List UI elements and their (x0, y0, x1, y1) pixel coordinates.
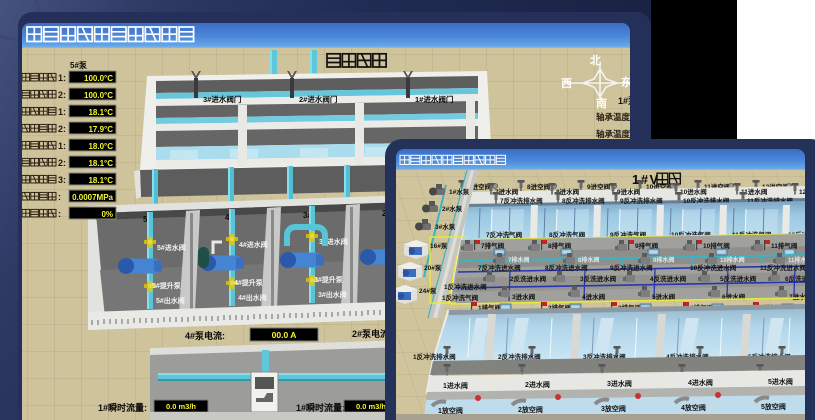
svg-text:3:: 3: (58, 175, 66, 185)
svg-text:5#进水阀: 5#进水阀 (157, 243, 186, 252)
svg-text:9排水阀: 9排水阀 (653, 256, 674, 264)
svg-text:2#进水阀门: 2#进水阀门 (299, 94, 337, 104)
svg-text:1#泵: 1#泵 (618, 96, 630, 106)
svg-text:轴承温度1: 轴承温度1 (596, 112, 630, 122)
svg-text:10反冲洗进水阀: 10反冲洗进水阀 (690, 263, 737, 272)
svg-text:1反冲洗气阀: 1反冲洗气阀 (442, 293, 479, 302)
svg-text:2放空阀: 2放空阀 (518, 405, 543, 414)
svg-text:1#进水阀门: 1#进水阀门 (415, 94, 453, 104)
svg-text:2进水阀: 2进水阀 (525, 380, 550, 389)
svg-text:18.1°C: 18.1°C (88, 176, 113, 185)
svg-text:10排水阀: 10排水阀 (720, 256, 745, 264)
svg-text:3进水阀: 3进水阀 (512, 292, 536, 301)
svg-text:100.0°C: 100.0°C (84, 74, 113, 83)
svg-text:0.0 m3/h: 0.0 m3/h (166, 402, 196, 411)
svg-text:北: 北 (590, 53, 601, 67)
svg-text:2#水泵: 2#水泵 (442, 204, 463, 213)
svg-text:1进水阀: 1进水阀 (443, 381, 468, 390)
svg-text:1#水泵: 1#水泵 (449, 187, 470, 196)
svg-text::: : (58, 209, 61, 219)
svg-text:5#提升泵: 5#提升泵 (152, 281, 181, 290)
svg-text:16#泵: 16#泵 (430, 241, 448, 250)
svg-text:东: 东 (621, 75, 630, 89)
svg-text:5放空阀: 5放空阀 (761, 402, 786, 411)
svg-text:1:: 1: (58, 73, 66, 83)
svg-text:7排水阀: 7排水阀 (508, 256, 529, 264)
svg-text:南: 南 (596, 96, 607, 110)
svg-text:3#出水阀: 3#出水阀 (318, 290, 347, 299)
svg-text:17.9°C: 17.9°C (88, 125, 113, 134)
svg-text:20#泵: 20#泵 (424, 263, 442, 272)
svg-text:24#泵: 24#泵 (419, 286, 437, 295)
svg-text:5反洗进水阀: 5反洗进水阀 (720, 274, 757, 283)
svg-text:4#泵电流:: 4#泵电流: (185, 330, 225, 341)
svg-text:2:: 2: (58, 90, 66, 100)
svg-text:3反洗进水阀: 3反洗进水阀 (580, 274, 617, 283)
svg-text:4进水阀: 4进水阀 (688, 378, 713, 387)
svg-text:3#提升泵: 3#提升泵 (314, 275, 343, 284)
svg-text:1放空阀: 1放空阀 (438, 406, 463, 415)
svg-text:7进水阀: 7进水阀 (495, 187, 519, 196)
svg-text:1#瞬时流量:: 1#瞬时流量: (98, 402, 147, 413)
svg-text:8反冲洗排水阀: 8反冲洗排水阀 (562, 196, 605, 205)
svg-text:8进空阀: 8进空阀 (527, 182, 551, 191)
svg-text:5#泵: 5#泵 (70, 61, 87, 70)
svg-text:2反洗进水阀: 2反洗进水阀 (510, 274, 547, 283)
svg-text:4#出水阀: 4#出水阀 (238, 293, 267, 302)
svg-text:4反洗进水阀: 4反洗进水阀 (650, 274, 687, 283)
svg-text:8排水阀: 8排水阀 (578, 256, 599, 264)
svg-text:4#提升泵: 4#提升泵 (234, 278, 263, 287)
svg-text:2:: 2: (58, 158, 66, 168)
svg-text:8反冲洗进水阀: 8反冲洗进水阀 (545, 263, 588, 272)
svg-text:10进水阀: 10进水阀 (680, 187, 707, 196)
svg-text:1:: 1: (58, 107, 66, 117)
svg-text:4#进水阀: 4#进水阀 (239, 240, 268, 249)
svg-text:3放空阀: 3放空阀 (601, 404, 626, 413)
svg-text:5进水阀: 5进水阀 (768, 377, 793, 386)
svg-text:7反冲洗排水阀: 7反冲洗排水阀 (500, 196, 543, 205)
svg-text:11排水阀: 11排水阀 (788, 256, 805, 264)
svg-text::: : (58, 192, 61, 202)
svg-text:18.0°C: 18.0°C (88, 142, 113, 151)
svg-text:1反冲洗排水阀: 1反冲洗排水阀 (413, 352, 456, 361)
svg-text:11进水阀: 11进水阀 (741, 187, 768, 196)
svg-text:8进水阀: 8进水阀 (556, 187, 580, 196)
svg-text:00.0 A: 00.0 A (272, 330, 297, 340)
svg-text:0.0 m3/h: 0.0 m3/h (356, 402, 386, 411)
svg-text:4进水阀: 4进水阀 (582, 292, 606, 301)
svg-text:18.1°C: 18.1°C (88, 159, 113, 168)
svg-text:0%: 0% (101, 210, 113, 219)
svg-text:12进水阀: 12进水阀 (799, 187, 805, 196)
svg-text:9反冲洗进水阀: 9反冲洗进水阀 (610, 263, 653, 272)
svg-text:5#出水阀: 5#出水阀 (156, 296, 185, 305)
svg-text:18.1°C: 18.1°C (88, 108, 113, 117)
svg-text:6反洗进水阀: 6反洗进水阀 (785, 274, 805, 283)
svg-text:0.0007MPa: 0.0007MPa (72, 193, 113, 202)
svg-text:3#水泵: 3#水泵 (435, 222, 456, 231)
svg-text:西: 西 (561, 77, 572, 90)
svg-text:100.0°C: 100.0°C (84, 91, 113, 100)
svg-text:1:: 1: (58, 141, 66, 151)
svg-text:轴承温度2: 轴承温度2 (596, 129, 630, 139)
svg-text:11反冲洗进水阀: 11反冲洗进水阀 (760, 263, 805, 272)
svg-text:1#瞬时流量:: 1#瞬时流量: (296, 402, 345, 413)
svg-text:3#进水阀门: 3#进水阀门 (203, 94, 241, 104)
svg-text:1反冲洗进水阀: 1反冲洗进水阀 (444, 282, 487, 291)
svg-text:9进水阀: 9进水阀 (617, 187, 641, 196)
svg-text:7进水阀: 7进水阀 (789, 292, 805, 301)
svg-text:7反冲洗气阀: 7反冲洗气阀 (486, 230, 523, 239)
svg-text:3进水阀: 3进水阀 (607, 379, 632, 388)
svg-text:4放空阀: 4放空阀 (681, 403, 706, 412)
svg-text:7反冲洗进水阀: 7反冲洗进水阀 (478, 263, 521, 272)
svg-text:2:: 2: (58, 124, 66, 134)
